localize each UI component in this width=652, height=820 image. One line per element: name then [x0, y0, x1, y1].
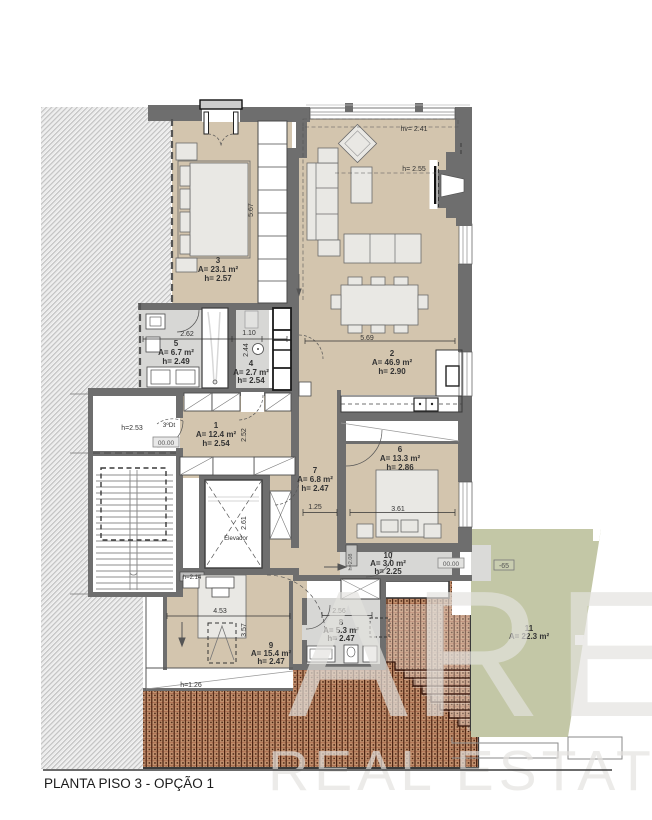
svg-text:1.10: 1.10 [242, 330, 256, 337]
svg-text:7: 7 [313, 466, 318, 475]
svg-text:2.44: 2.44 [243, 343, 250, 357]
svg-text:A= 6.7 m²: A= 6.7 m² [158, 348, 194, 357]
svg-text:REAL ESTATE: REAL ESTATE [268, 739, 652, 803]
svg-text:1.25: 1.25 [308, 504, 322, 511]
svg-text:3: 3 [216, 256, 221, 265]
svg-text:2.52: 2.52 [241, 428, 248, 442]
svg-text:4.53: 4.53 [213, 608, 227, 615]
svg-text:E: E [556, 554, 652, 755]
svg-text:h=2.53: h=2.53 [121, 425, 143, 432]
svg-text:6: 6 [398, 445, 403, 454]
svg-text:h= 2.47: h= 2.47 [301, 484, 329, 493]
svg-text:h=2.14: h=2.14 [183, 575, 202, 581]
svg-text:h=1.26: h=1.26 [180, 682, 202, 689]
svg-text:1: 1 [214, 421, 219, 430]
svg-text:Elevador: Elevador [224, 536, 248, 542]
svg-text:h= 2.54: h= 2.54 [202, 439, 230, 448]
svg-text:2: 2 [390, 349, 395, 358]
svg-text:3.57: 3.57 [241, 623, 248, 637]
svg-text:h= 2.57: h= 2.57 [204, 274, 232, 283]
svg-text:5: 5 [174, 339, 179, 348]
svg-text:3.61: 3.61 [391, 506, 405, 513]
svg-text:A= 6.8 m²: A= 6.8 m² [297, 475, 333, 484]
svg-text:2.61: 2.61 [241, 516, 248, 530]
svg-text:A: A [288, 554, 408, 755]
svg-text:h= 2.49: h= 2.49 [162, 357, 190, 366]
svg-text:h= 2.47: h= 2.47 [257, 657, 285, 666]
svg-text:h= 2.54: h= 2.54 [237, 376, 265, 385]
svg-text:A= 13.3 m²: A= 13.3 m² [380, 454, 421, 463]
svg-text:h= 2.86: h= 2.86 [386, 463, 414, 472]
svg-text:3ºDt: 3ºDt [163, 422, 176, 429]
svg-text:PLANTA PISO 3 - OPÇÃO 1: PLANTA PISO 3 - OPÇÃO 1 [44, 776, 214, 791]
svg-text:hv= 2.41: hv= 2.41 [400, 126, 427, 133]
svg-text:R: R [412, 554, 542, 755]
svg-text:4: 4 [249, 359, 254, 368]
svg-text:00.00: 00.00 [158, 440, 175, 447]
svg-text:h= 2.90: h= 2.90 [378, 367, 406, 376]
svg-text:5.67: 5.67 [248, 203, 255, 217]
svg-text:2.62: 2.62 [180, 331, 194, 338]
svg-text:A= 46.9 m²: A= 46.9 m² [372, 358, 413, 367]
svg-text:h= 2.55: h= 2.55 [402, 166, 426, 173]
svg-text:A= 12.4 m²: A= 12.4 m² [196, 430, 237, 439]
svg-text:A= 23.1 m²: A= 23.1 m² [198, 265, 239, 274]
